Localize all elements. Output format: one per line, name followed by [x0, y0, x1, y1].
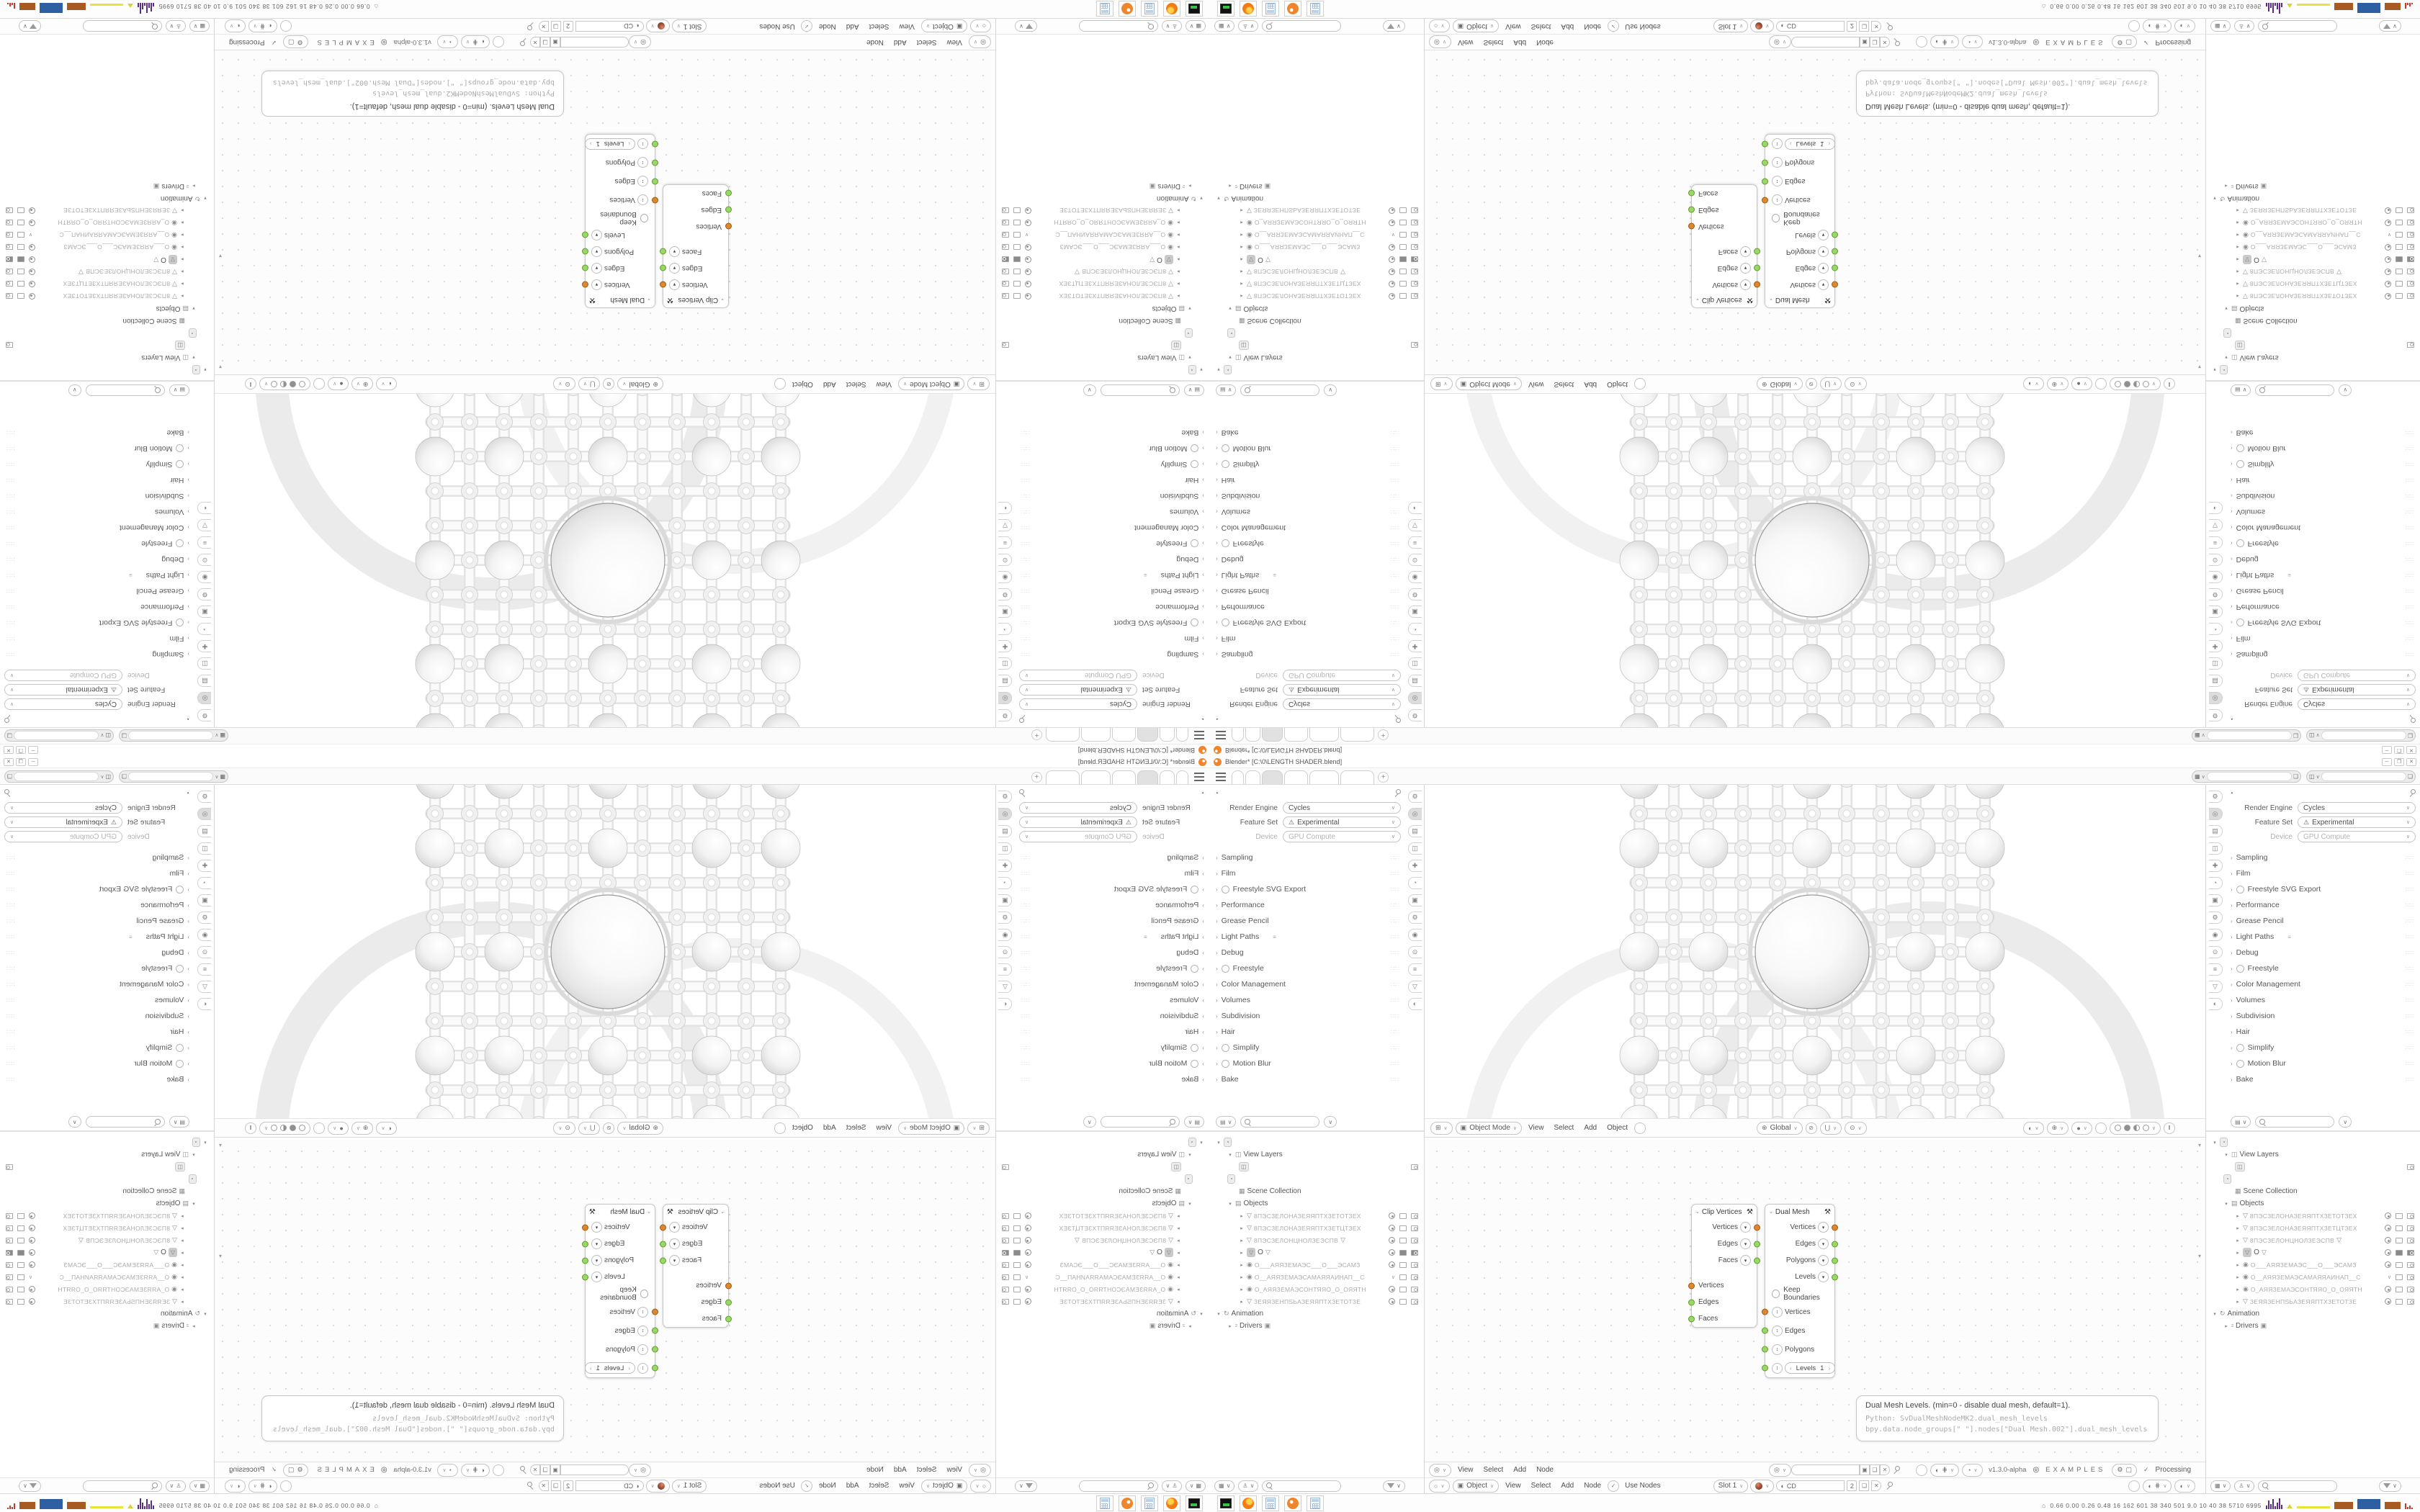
- outliner-row[interactable]: ▸◉O___АЯЯЗЕМАЭС___О___ЭСАМЗ: [3, 241, 211, 253]
- outliner-row[interactable]: ▸◉O__АЯЯЗЕМАЭСАМАЯЯАИНАП__С∨: [1213, 229, 1421, 241]
- properties-panel-row[interactable]: ›Simplify∷∷: [1019, 456, 1206, 472]
- filter-dropdown[interactable]: ▤∨: [1216, 1116, 1236, 1128]
- outliner-row[interactable]: ▸◉O_АЯЯЗЕМАЭСОНТЯЯО_О_ОЯЯТН: [1213, 217, 1421, 229]
- disable-viewport-icon[interactable]: [2396, 1213, 2403, 1219]
- use-nodes-checkbox[interactable]: ✓Use Nodes: [756, 1480, 812, 1492]
- properties-panel-row[interactable]: ›Light Paths≡∷∷: [1214, 929, 1401, 945]
- properties-tab-particles[interactable]: ◉: [1408, 571, 1422, 583]
- extra-options-button[interactable]: [1634, 379, 1646, 390]
- tree-caret-icon[interactable]: ▾: [1216, 367, 1222, 373]
- node-dual-mesh[interactable]: ⌄Dual Mesh⚒Vertices▾Edges▾Polygons▾Level…: [1765, 134, 1835, 308]
- tree-caret-icon[interactable]: ▸: [2235, 233, 2241, 238]
- snapping-dropdown[interactable]: ⋃∨: [1820, 378, 1842, 391]
- workspace-tab[interactable]: [1245, 770, 1260, 784]
- pin-toggle[interactable]: [1394, 789, 1401, 798]
- properties-panel-row[interactable]: ›Grease Pencil∷∷: [2229, 583, 2416, 599]
- properties-tab-view-layer[interactable]: ◫: [2209, 842, 2223, 855]
- calculator2-app-button[interactable]: [1096, 1495, 1113, 1511]
- filter-dropdown[interactable]: ▤∨: [2231, 384, 2251, 396]
- hide-eye-icon[interactable]: [2385, 1261, 2391, 1268]
- filter-dropdown[interactable]: ▤∨: [169, 384, 189, 396]
- restore-button[interactable]: ❐: [16, 758, 26, 766]
- node-dual-mesh[interactable]: ⌄Dual Mesh⚒Vertices▾Edges▾Polygons▾Level…: [585, 1204, 655, 1378]
- properties-panel-row[interactable]: ›Sampling∷∷: [4, 647, 191, 662]
- input-socket-levels[interactable]: [1762, 141, 1768, 148]
- filter-owner-dropdown[interactable]: ♙∨: [1238, 1480, 1258, 1492]
- socket-menu-button[interactable]: ▾: [591, 230, 602, 240]
- disable-render-icon[interactable]: [2407, 1225, 2414, 1231]
- viewport-menu-object[interactable]: Object: [789, 1124, 817, 1132]
- properties-tab-modifiers[interactable]: ⚙: [2209, 588, 2223, 600]
- outliner-row[interactable]: ▾◔: [999, 364, 1207, 376]
- outliner-row[interactable]: ▸◉O___АЯЯЗЕМАЭС___О___ЭСАМЗ: [999, 241, 1207, 253]
- property-value-dropdown[interactable]: GPU Compute∨: [4, 831, 122, 842]
- properties-panel-row[interactable]: ›Motion Blur∷∷: [2229, 1056, 2416, 1071]
- properties-tab-material[interactable]: ◐: [999, 998, 1013, 1010]
- disable-render-icon[interactable]: [1411, 1250, 1418, 1256]
- disable-viewport-icon[interactable]: [1013, 1262, 1021, 1268]
- disable-render-icon[interactable]: [6, 1274, 13, 1280]
- sverchok-menu-view[interactable]: View: [944, 38, 967, 46]
- disable-render-icon[interactable]: [2407, 220, 2414, 226]
- hide-eye-icon[interactable]: [29, 293, 35, 300]
- outliner-row[interactable]: ◔: [999, 1173, 1207, 1185]
- output-socket-levels[interactable]: [582, 1274, 588, 1280]
- properties-tab-object-data[interactable]: ▽: [2209, 519, 2223, 531]
- socket-menu-button[interactable]: ▾: [669, 1255, 680, 1266]
- properties-tab-object-data[interactable]: ▽: [1408, 519, 1422, 531]
- properties-tab-world[interactable]: ◔: [198, 877, 212, 889]
- outliner-editor[interactable]: ▾◔▾◫View Layers◫◔▦Scene Collection▾▤Obje…: [2206, 1132, 2420, 1477]
- disable-render-icon[interactable]: [6, 1299, 13, 1305]
- display-mode-dropdown[interactable]: ▦∨: [2210, 1480, 2231, 1492]
- properties-search-input[interactable]: [86, 1116, 165, 1128]
- workspace-tab[interactable]: [1137, 728, 1158, 742]
- outliner-row[interactable]: ▦Scene Collection: [999, 1185, 1207, 1197]
- properties-panel-row[interactable]: ›Debug∷∷: [1019, 552, 1206, 567]
- hide-eye-icon[interactable]: [1025, 1212, 1031, 1219]
- properties-panel-row[interactable]: ›Performance∷∷: [1214, 599, 1401, 615]
- properties-panel-row[interactable]: ›Simplify∷∷: [1214, 456, 1401, 472]
- properties-panel-row[interactable]: ›Sampling∷∷: [1019, 647, 1206, 662]
- tree-caret-icon[interactable]: ▸: [179, 257, 185, 263]
- panel-enable-toggle[interactable]: [1222, 619, 1229, 627]
- panel-enable-toggle[interactable]: [1191, 445, 1198, 453]
- shading-mode-3-button[interactable]: [280, 1125, 287, 1131]
- properties-panel-row[interactable]: ›Bake∷∷: [1019, 425, 1206, 441]
- datablock-chip-icon[interactable]: ◔: [189, 328, 197, 338]
- datablock-chip-icon[interactable]: ◔: [2220, 1138, 2228, 1147]
- socket-menu-button[interactable]: ▾: [1740, 279, 1751, 290]
- tree-caret-icon[interactable]: ▸: [1175, 1262, 1181, 1268]
- properties-panel-row[interactable]: ›Freestyle∷∷: [1019, 536, 1206, 552]
- shader-menu-view[interactable]: View: [895, 1482, 918, 1490]
- disable-render-icon[interactable]: [6, 1250, 13, 1256]
- calculator-app-button[interactable]: [1262, 1495, 1279, 1511]
- properties-tab-scene[interactable]: ✚: [999, 860, 1013, 872]
- outliner-row[interactable]: ▸▽ЗЕЯЯЗЕНПЅЬАЗЕЯЯПТХЗЕТОТЗЕ: [3, 204, 211, 217]
- outliner-search-input[interactable]: [83, 21, 162, 32]
- workspace-tab[interactable]: [1112, 728, 1136, 742]
- collapse-caret-icon[interactable]: ⌄: [720, 1209, 725, 1215]
- hide-eye-icon[interactable]: [1389, 293, 1395, 300]
- property-value-dropdown[interactable]: GPU Compute∨: [4, 670, 122, 681]
- snap-toggle[interactable]: ⊘: [1806, 1122, 1817, 1134]
- outliner-row[interactable]: ▸◉O_АЯЯЗЕМАЭСОНТЯЯО_О_ОЯЯТН: [999, 1283, 1207, 1295]
- sverchok-menu-add[interactable]: Add: [890, 38, 910, 46]
- datablock-chip-icon[interactable]: ◔: [1227, 1174, 1235, 1184]
- gizmos-dropdown[interactable]: ⊕∨: [2047, 378, 2069, 391]
- properties-tab-material[interactable]: ◐: [2209, 502, 2223, 514]
- tree-caret-icon[interactable]: ▸: [179, 233, 185, 238]
- property-value-dropdown[interactable]: Cycles∨: [2298, 698, 2416, 710]
- disable-render-icon[interactable]: [1002, 245, 1009, 251]
- tree-caret-icon[interactable]: ▸: [179, 1287, 185, 1292]
- disable-render-icon[interactable]: [1411, 208, 1418, 214]
- shader-editor-type-button[interactable]: ○∨: [1429, 1480, 1450, 1493]
- outliner-row[interactable]: ▾◫View Layers: [1213, 1148, 1421, 1161]
- proportional-edit-dropdown[interactable]: ⊙∨: [1845, 1122, 1867, 1135]
- output-socket-polygons[interactable]: [1832, 248, 1838, 255]
- decrement-arrow-icon[interactable]: ‹: [1790, 141, 1792, 148]
- draft-mode-dropdown[interactable]: ◐⋕∨: [1930, 36, 1959, 49]
- hide-eye-icon[interactable]: [29, 207, 35, 214]
- disable-render-icon[interactable]: [6, 1262, 13, 1268]
- collapse-dropdown[interactable]: ∨: [1083, 1116, 1096, 1128]
- output-socket-faces[interactable]: [1754, 1257, 1760, 1264]
- outliner-row[interactable]: ▾↻Animation: [1213, 192, 1421, 204]
- calculator2-app-button[interactable]: [1307, 1495, 1324, 1511]
- node-dual-mesh[interactable]: ⌄Dual Mesh⚒Vertices▾Edges▾Polygons▾Level…: [1765, 1204, 1835, 1378]
- properties-tab-particles[interactable]: ◉: [198, 571, 212, 583]
- sverchok-node-editor[interactable]: ▾ ▾ Dual Mesh Levels. (min=0 - disable d…: [1425, 50, 2205, 374]
- properties-tab-render[interactable]: ◎: [198, 692, 212, 704]
- properties-tab-world[interactable]: ◔: [198, 623, 212, 635]
- shading-mode-3-button[interactable]: [280, 381, 287, 387]
- filter-owner-dropdown[interactable]: ♙∨: [1162, 21, 1182, 32]
- collapse-caret-icon[interactable]: ⌄: [1769, 297, 1773, 303]
- outliner-row[interactable]: ▸▽O▽: [3, 253, 211, 266]
- input-socket-vertices[interactable]: [725, 1282, 732, 1289]
- calculator-app-button[interactable]: [1141, 1495, 1158, 1511]
- disable-render-icon[interactable]: [1411, 343, 1418, 348]
- output-socket-faces[interactable]: [1754, 248, 1760, 255]
- collapse-dropdown[interactable]: ∨: [1324, 1116, 1337, 1128]
- hide-eye-icon[interactable]: [2385, 1286, 2391, 1292]
- outliner-row[interactable]: ▸▽O▽: [999, 1246, 1207, 1259]
- terminal-app-button[interactable]: [1217, 1, 1234, 17]
- properties-tab-physics[interactable]: ⊙: [198, 554, 212, 566]
- outliner-row[interactable]: ▸▽8ПЭСЗЕЛОНАЗЕЯЯПТХЗЕТОТЗЕХ: [1213, 290, 1421, 302]
- display-mode-dropdown[interactable]: ▦∨: [2210, 21, 2231, 32]
- disable-viewport-icon[interactable]: [2396, 233, 2403, 238]
- properties-panel-row[interactable]: ›Light Paths≡∷∷: [4, 567, 191, 583]
- pause-button[interactable]: ‖: [2164, 379, 2175, 390]
- property-value-dropdown[interactable]: GPU Compute∨: [1283, 670, 1401, 681]
- properties-tab-tool[interactable]: ⚙: [1408, 791, 1422, 803]
- close-button[interactable]: ✕: [2406, 758, 2416, 766]
- tree-caret-icon[interactable]: ▸: [1239, 233, 1245, 238]
- hide-eye-icon[interactable]: [1025, 220, 1031, 226]
- tree-caret-icon[interactable]: ▸: [1187, 1323, 1193, 1329]
- material-preview-dropdown[interactable]: ∨: [1750, 20, 1774, 33]
- copy-view-layer-icon[interactable]: ❏: [2408, 732, 2413, 739]
- outliner-editor[interactable]: ▾◔▾◫View Layers◫◔▦Scene Collection▾▤Obje…: [0, 35, 214, 380]
- properties-panel-row[interactable]: ›Color Management∷∷: [1019, 976, 1206, 992]
- tree-caret-icon[interactable]: ▸: [1239, 1250, 1245, 1256]
- panel-enable-toggle[interactable]: [1222, 1060, 1229, 1068]
- properties-tab-physics[interactable]: ⊙: [2209, 554, 2223, 566]
- workspace-tab[interactable]: [1160, 728, 1175, 742]
- pin-toggle[interactable]: [1019, 714, 1026, 723]
- outliner-row[interactable]: ▸▽8ПЭСЗЕЛОНАЗЕЯЯПТХЗЕТЦТЗЕХ: [1213, 278, 1421, 290]
- outliner-row[interactable]: ▾◫View Layers: [999, 351, 1207, 364]
- shader-menu-view[interactable]: View: [895, 22, 918, 30]
- properties-tab-material[interactable]: ◐: [1408, 998, 1422, 1010]
- properties-tab-tool[interactable]: ⚙: [198, 791, 212, 803]
- datablock-chip-icon[interactable]: ◔: [2223, 328, 2231, 338]
- socket-menu-button[interactable]: ▾: [591, 263, 602, 274]
- extra-options-button[interactable]: [774, 1122, 786, 1134]
- socket-options-button[interactable]: ↕: [1772, 195, 1783, 206]
- socket-options-button[interactable]: ↕: [637, 1326, 648, 1336]
- hide-eye-icon[interactable]: [1389, 1212, 1395, 1219]
- properties-panel-row[interactable]: ›Film∷∷: [2229, 631, 2416, 647]
- pin-toggle[interactable]: [1019, 789, 1026, 798]
- outliner-row[interactable]: ▦Scene Collection: [2209, 1185, 2417, 1197]
- socket-menu-button[interactable]: ▾: [591, 1272, 602, 1282]
- properties-panel-row[interactable]: ›Freestyle∷∷: [2229, 960, 2416, 976]
- viewport-menu-view[interactable]: View: [872, 1124, 895, 1132]
- collapse-caret-icon[interactable]: ⌄: [647, 297, 651, 303]
- panel-enable-toggle[interactable]: [1191, 619, 1198, 627]
- bake-dropdown[interactable]: ◔∨: [1962, 1464, 1983, 1477]
- examples-menu[interactable]: EXAMPLES: [315, 1466, 375, 1474]
- tree-caret-icon[interactable]: ▸: [1227, 1323, 1233, 1329]
- disable-viewport-icon[interactable]: [17, 1250, 24, 1256]
- filter-dropdown[interactable]: ▤∨: [2231, 1116, 2251, 1128]
- datablock-chip-icon[interactable]: ◔: [2223, 1174, 2231, 1184]
- output-socket-edges[interactable]: [1832, 1241, 1838, 1247]
- outliner-row[interactable]: ▾◫View Layers: [1213, 351, 1421, 364]
- socket-options-button[interactable]: ↕: [1772, 158, 1783, 168]
- material-user-count[interactable]: 2: [1847, 21, 1857, 32]
- disable-viewport-icon[interactable]: [17, 294, 24, 300]
- properties-panel-row[interactable]: ›Bake∷∷: [1214, 1071, 1401, 1087]
- pin-toggle[interactable]: [2409, 714, 2416, 723]
- panel-enable-toggle[interactable]: [176, 965, 184, 973]
- disable-viewport-icon[interactable]: [17, 1299, 24, 1305]
- sverchok-menu-node[interactable]: Node: [863, 1466, 887, 1474]
- output-socket-edges[interactable]: [1754, 1241, 1760, 1247]
- properties-panel-row[interactable]: ›Sampling∷∷: [2229, 850, 2416, 865]
- panel-enable-toggle[interactable]: [1222, 965, 1229, 973]
- outliner-row[interactable]: ▸▽8ПЭСЗЕЛОНАЗЕЯЯПТХЗЕТЦТЗЕХ: [999, 1222, 1207, 1234]
- disable-viewport-icon[interactable]: [17, 1287, 24, 1292]
- hide-eye-icon[interactable]: [29, 220, 35, 226]
- socket-menu-button[interactable]: ▾: [1740, 1222, 1751, 1233]
- properties-editor-icon[interactable]: ◔: [187, 790, 191, 798]
- outliner-filter-dropdown[interactable]: ∨: [19, 1480, 41, 1492]
- hide-eye-icon[interactable]: [2385, 207, 2391, 214]
- property-value-dropdown[interactable]: ⚠Experimental∨: [2298, 684, 2416, 696]
- shader-type-dropdown[interactable]: ▣Object∨: [921, 1480, 968, 1493]
- tree-caret-icon[interactable]: ▸: [2223, 184, 2229, 189]
- outliner-row[interactable]: ▸▽ЗЕЯЯЗЕНПЅЬАЗЕЯЯПТХЗЕТОТЗЕ: [999, 1295, 1207, 1308]
- socket-menu-button[interactable]: ▾: [1740, 246, 1751, 257]
- datablock-chip-icon[interactable]: ▽: [2243, 1248, 2251, 1257]
- tree-caret-icon[interactable]: ▸: [1239, 257, 1245, 263]
- properties-tab-object-data[interactable]: ▽: [1408, 981, 1422, 993]
- panel-enable-toggle[interactable]: [1191, 886, 1198, 894]
- outliner-row[interactable]: ▸▽8ПЭСЗЕЛОНЦНОЛЗЕЭСПВ▽: [2209, 266, 2417, 278]
- tree-caret-icon[interactable]: ▸: [179, 269, 185, 275]
- tree-caret-icon[interactable]: ▸: [179, 1238, 185, 1243]
- disable-viewport-icon[interactable]: [17, 1213, 24, 1219]
- use-nodes-checkbox[interactable]: ✓Use Nodes: [756, 21, 812, 32]
- output-socket-edges[interactable]: [582, 265, 588, 271]
- outliner-row[interactable]: ▦Scene Collection: [999, 315, 1207, 327]
- outliner-row[interactable]: ◔: [3, 327, 211, 339]
- process-toggle[interactable]: [493, 1464, 504, 1476]
- tree-name-field[interactable]: [560, 1464, 629, 1475]
- socket-options-button[interactable]: ↕: [1772, 176, 1783, 187]
- input-socket-edges[interactable]: [652, 179, 658, 185]
- material-slot-dropdown[interactable]: Slot 1∨: [1713, 20, 1749, 33]
- outliner-filter-dropdown[interactable]: ∨: [1383, 21, 1405, 32]
- xray-toggle[interactable]: [313, 379, 325, 390]
- properties-panel-row[interactable]: ›Hair∷∷: [4, 1024, 191, 1040]
- properties-tab-output[interactable]: ▤: [1408, 825, 1422, 837]
- disable-render-icon[interactable]: [1411, 282, 1418, 287]
- node-clip-vertices[interactable]: ⌄Clip Vertices⚒Vertices▾Edges▾Faces▾Vert…: [663, 184, 729, 308]
- process-toggle[interactable]: [493, 37, 504, 48]
- tree-caret-icon[interactable]: ▸: [2235, 1262, 2241, 1268]
- properties-tab-view-layer[interactable]: ◫: [999, 657, 1013, 670]
- pause-button[interactable]: ‖: [245, 379, 256, 390]
- shader-type-dropdown[interactable]: ▣Object∨: [1453, 20, 1500, 33]
- display-mode-dropdown[interactable]: ▦∨: [1214, 21, 1234, 32]
- filter-dropdown[interactable]: ▤∨: [1184, 1116, 1204, 1128]
- viewport-menu-object[interactable]: Object: [1603, 1124, 1631, 1132]
- disable-render-icon[interactable]: [1002, 343, 1009, 348]
- properties-tab-physics[interactable]: ⊙: [999, 946, 1013, 958]
- disable-viewport-icon[interactable]: [2396, 1238, 2403, 1243]
- unlink-material-button[interactable]: ✕: [1871, 21, 1881, 32]
- panel-enable-toggle[interactable]: [1191, 540, 1198, 548]
- outliner-row[interactable]: ▾◫View Layers: [2209, 351, 2417, 364]
- panel-enable-toggle[interactable]: [176, 1060, 184, 1068]
- outliner-row[interactable]: ▸◉O__АЯЯЗЕМАЭСАМАЯЯАИНАП__С∨: [2209, 1271, 2417, 1283]
- shading-mode-1-button[interactable]: [299, 1125, 305, 1131]
- proportional-edit-dropdown[interactable]: ⊙∨: [553, 1122, 575, 1135]
- outliner-row[interactable]: ▸²Drivers▣: [1213, 180, 1421, 192]
- properties-panel-row[interactable]: ›Subdivision∷∷: [1214, 488, 1401, 504]
- properties-panel-row[interactable]: ›Color Management∷∷: [1019, 520, 1206, 536]
- display-mode-dropdown[interactable]: ▦∨: [1214, 1480, 1234, 1492]
- disable-render-icon[interactable]: [6, 343, 13, 348]
- disable-render-icon[interactable]: [1002, 294, 1009, 300]
- visibility-dropdown[interactable]: ●∨: [2071, 378, 2092, 391]
- datablock-chip-icon[interactable]: ◔: [2220, 365, 2228, 374]
- input-socket-polygons[interactable]: [1762, 160, 1768, 166]
- hide-eye-icon[interactable]: [1389, 1298, 1395, 1305]
- add-workspace-button[interactable]: +: [1378, 729, 1389, 740]
- properties-tab-output[interactable]: ▤: [2209, 825, 2223, 837]
- keep-boundaries-checkbox[interactable]: [640, 1290, 648, 1298]
- tree-caret-icon[interactable]: ▸: [1239, 1287, 1245, 1292]
- property-value-dropdown[interactable]: GPU Compute∨: [2298, 670, 2416, 681]
- firefox-app-button[interactable]: [1163, 1, 1180, 17]
- properties-tab-particles[interactable]: ◉: [1408, 929, 1422, 941]
- output-socket-edges[interactable]: [582, 1241, 588, 1247]
- input-socket-vertices[interactable]: [1688, 223, 1695, 230]
- outliner-row[interactable]: ▸▽ЗЕЯЯЗЕНПЅЬАЗЕЯЯПТХЗЕТОТЗЕ: [2209, 1295, 2417, 1308]
- menu-hamburger-icon[interactable]: [1194, 731, 1204, 739]
- examples-menu[interactable]: EXAMPLES: [2045, 1466, 2105, 1474]
- pin-toggle[interactable]: [520, 1466, 526, 1475]
- workspace-tab[interactable]: [1160, 770, 1175, 784]
- outliner-row[interactable]: ▸▽O▽: [1213, 253, 1421, 266]
- disable-viewport-icon[interactable]: [1013, 1299, 1021, 1305]
- xray-toggle[interactable]: [2095, 379, 2107, 390]
- properties-panel-row[interactable]: ›Simplify∷∷: [1019, 1040, 1206, 1056]
- hide-eye-icon[interactable]: [29, 256, 35, 263]
- workspace-tab[interactable]: [1309, 770, 1339, 784]
- properties-tab-object[interactable]: ▣: [999, 894, 1013, 906]
- disable-viewport-icon[interactable]: [1013, 257, 1021, 263]
- outliner-row[interactable]: ▸▽8ПЭСЗЕЛОНАЗЕЯЯПТХЗЕТОТЗЕХ: [2209, 290, 2417, 302]
- material-name-field[interactable]: ◐CD: [1776, 1480, 1845, 1491]
- workspace-tab[interactable]: [1176, 770, 1188, 784]
- tree-caret-icon[interactable]: ▾: [2212, 1311, 2218, 1317]
- outliner-row[interactable]: ▸▽ЗЕЯЯЗЕНПЅЬАЗЕЯЯПТХЗЕТОТЗЕ: [1213, 1295, 1421, 1308]
- outliner-row[interactable]: ▾◔: [3, 364, 211, 376]
- outliner-search-input[interactable]: [2258, 21, 2337, 32]
- mode-selector[interactable]: ▣Object Mode∨: [1456, 378, 1522, 391]
- tree-caret-icon[interactable]: ▸: [1175, 1225, 1181, 1231]
- collapse-dropdown[interactable]: ∨: [1083, 384, 1096, 396]
- properties-tab-scene[interactable]: ✚: [2209, 640, 2223, 652]
- outliner-row[interactable]: ▸▽O▽: [2209, 253, 2417, 266]
- properties-tab-tool[interactable]: ⚙: [2209, 709, 2223, 721]
- properties-panel-row[interactable]: ›Freestyle SVG Export∷∷: [1019, 615, 1206, 631]
- outliner-row[interactable]: ▾▤Objects: [1213, 1197, 1421, 1210]
- workspace-tab[interactable]: [1081, 728, 1111, 742]
- properties-panel-row[interactable]: ›Bake∷∷: [4, 425, 191, 441]
- hide-eye-icon[interactable]: [1389, 207, 1395, 214]
- extra-options-button[interactable]: [774, 379, 786, 390]
- properties-tab-particles[interactable]: ◉: [198, 929, 212, 941]
- properties-tab-constraints[interactable]: ≡: [198, 963, 212, 976]
- tree-caret-icon[interactable]: ▸: [2235, 1250, 2241, 1256]
- panel-enable-toggle[interactable]: [1222, 886, 1229, 894]
- datablock-chip-icon[interactable]: ◫: [1239, 341, 1249, 350]
- properties-panel-row[interactable]: ›Performance∷∷: [2229, 599, 2416, 615]
- disable-render-icon[interactable]: [1002, 208, 1009, 214]
- sverchok-menu-select[interactable]: Select: [913, 1466, 941, 1474]
- disable-render-icon[interactable]: [1002, 1250, 1009, 1256]
- tree-caret-icon[interactable]: ▸: [179, 1274, 185, 1280]
- tree-caret-icon[interactable]: ▸: [191, 184, 197, 189]
- outliner-row[interactable]: ▾↻Animation: [1213, 1308, 1421, 1320]
- hide-eye-icon[interactable]: [2385, 1212, 2391, 1219]
- socket-menu-button[interactable]: ▾: [1818, 1272, 1829, 1282]
- disable-render-icon[interactable]: [1411, 220, 1418, 226]
- sverchok-editor-type-button[interactable]: ◎∨: [969, 1464, 991, 1477]
- blender-app-button[interactable]: [1119, 1495, 1136, 1511]
- disable-render-icon[interactable]: [1411, 1299, 1418, 1305]
